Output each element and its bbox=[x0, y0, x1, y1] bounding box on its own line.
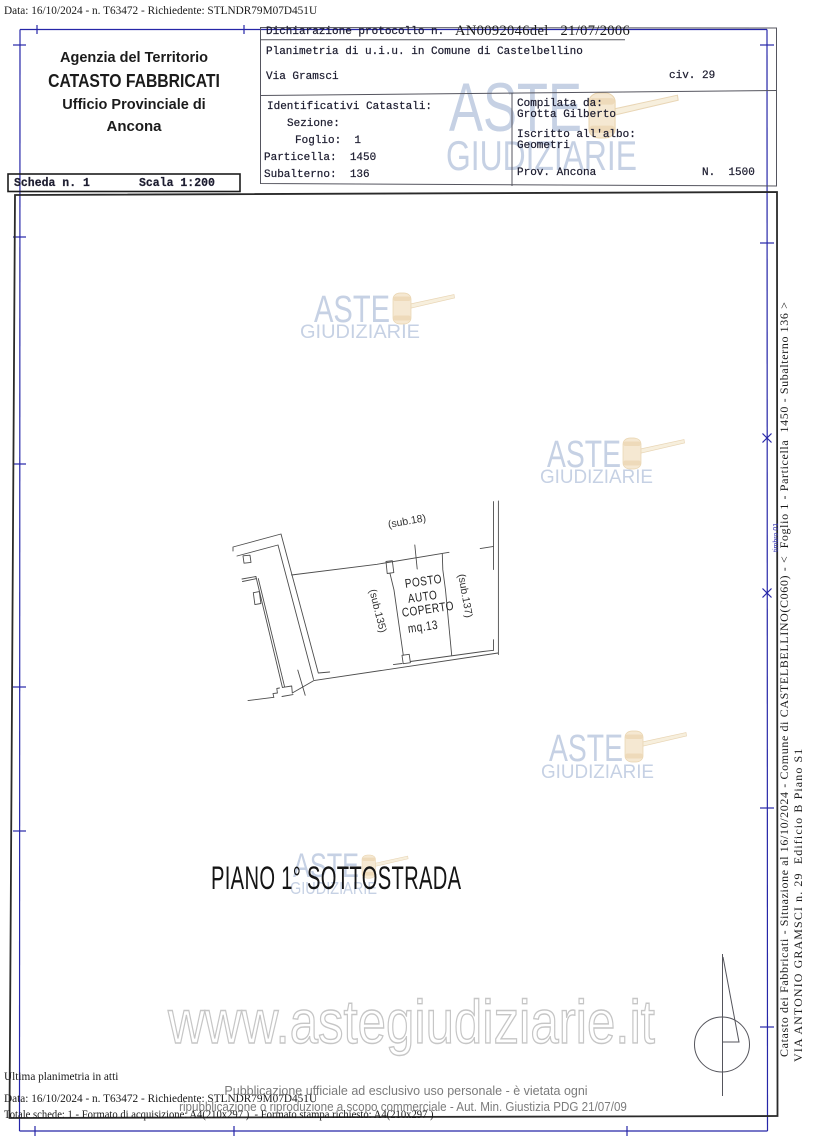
svg-text:GIUDIZIARIE: GIUDIZIARIE bbox=[541, 761, 654, 783]
svg-text:GIUDIZIARIE: GIUDIZIARIE bbox=[540, 466, 653, 488]
